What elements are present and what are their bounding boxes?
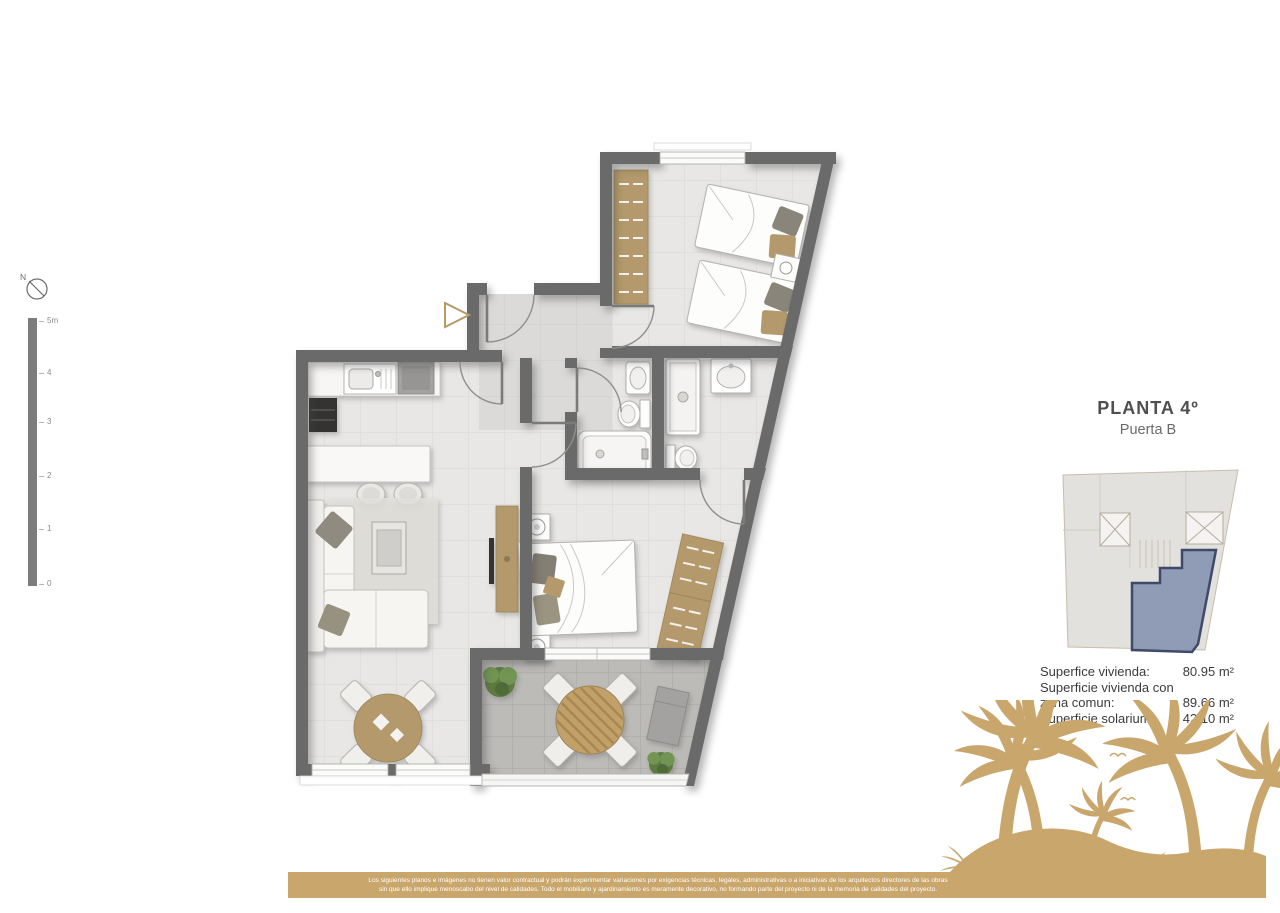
area-value: 80.95 m²: [1183, 664, 1234, 680]
wardrobe: [614, 170, 648, 304]
floor-plan: [0, 0, 900, 913]
palm-tree-icon: [1101, 700, 1239, 858]
disclaimer-line: Los siguientes planos e imágenes no tien…: [318, 876, 998, 885]
tv: [489, 538, 494, 584]
toilet: [618, 400, 650, 428]
plan-subtitle: Puerta B: [1040, 422, 1256, 438]
key-plan: [1055, 460, 1240, 660]
coffee-table: [372, 522, 406, 574]
double-bed: [518, 538, 637, 638]
palm-illustration: [940, 700, 1280, 880]
bird-icon: [1121, 798, 1135, 800]
kitchen-oven: [309, 398, 337, 432]
plan-title: PLANTA 4º: [1040, 398, 1256, 419]
kitchen-island: [306, 446, 430, 482]
washbasin: [711, 359, 751, 393]
palm-tree-icon: [1213, 720, 1280, 862]
dining-area: [339, 679, 437, 777]
toilet: [666, 445, 697, 471]
dining-table: [354, 694, 422, 762]
disclaimer-line: sin que ello implique menoscabo del nive…: [318, 885, 998, 894]
area-row: Superfice vivienda: 80.95 m²: [1040, 664, 1234, 680]
area-label: Superfice vivienda:: [1040, 664, 1183, 680]
brochure-page: N 5m 4 3 2 1 0: [0, 0, 1280, 913]
entry-arrow-icon: [445, 303, 469, 327]
bird-icon: [1110, 754, 1126, 757]
title-block: PLANTA 4º Puerta B: [1040, 398, 1256, 438]
disclaimer-bar: Los siguientes planos e imágenes no tien…: [288, 872, 1266, 898]
disclaimer-text: Los siguientes planos e imágenes no tien…: [318, 876, 998, 894]
